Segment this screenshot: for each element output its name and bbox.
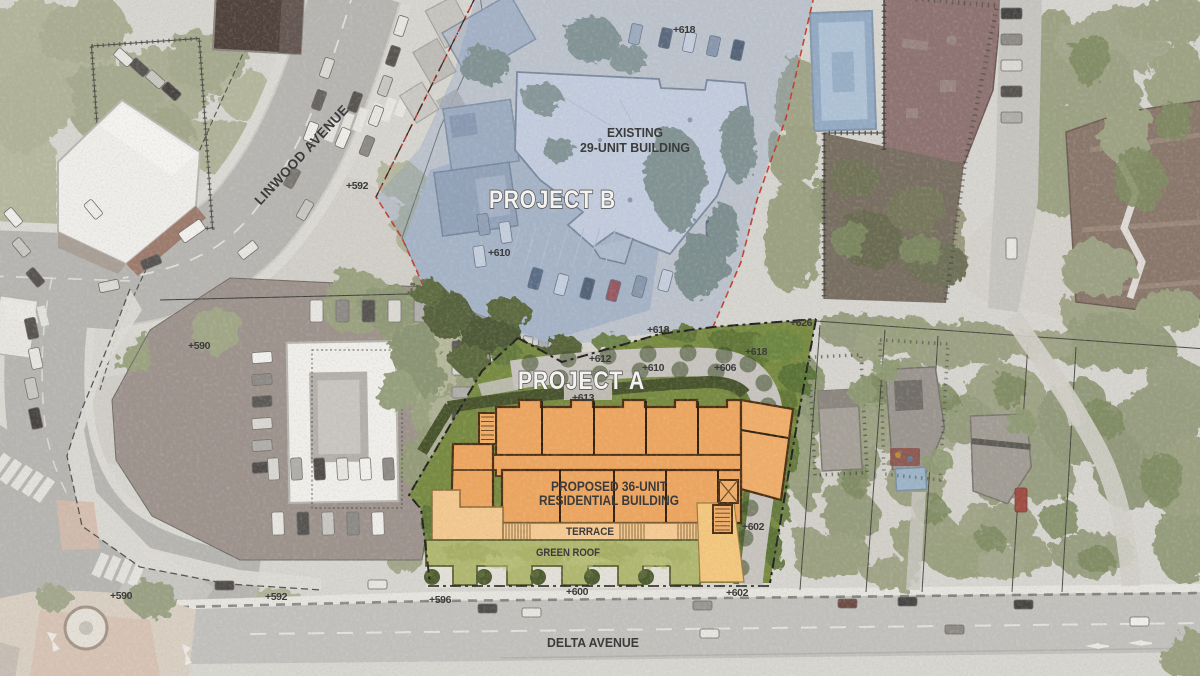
svg-text:+590: +590 (188, 340, 211, 352)
svg-text:+592: +592 (265, 591, 288, 603)
svg-text:DELTA AVENUE: DELTA AVENUE (547, 635, 639, 650)
svg-text:+596: +596 (429, 594, 452, 606)
svg-text:TERRACE: TERRACE (566, 526, 614, 538)
svg-text:+606: +606 (714, 362, 737, 374)
svg-text:29-UNIT BUILDING: 29-UNIT BUILDING (580, 141, 690, 155)
svg-text:PROJECT B: PROJECT B (489, 186, 616, 214)
svg-text:+613: +613 (572, 392, 595, 404)
svg-text:+600: +600 (566, 586, 589, 598)
svg-text:+590: +590 (110, 590, 133, 602)
svg-text:+602: +602 (726, 587, 749, 599)
svg-text:+610: +610 (642, 362, 665, 374)
svg-text:RESIDENTIAL BUILDING: RESIDENTIAL BUILDING (539, 493, 679, 508)
svg-text:+618: +618 (673, 24, 696, 36)
svg-text:PROPOSED 36-UNIT: PROPOSED 36-UNIT (551, 479, 668, 494)
svg-text:PROJECT A: PROJECT A (518, 367, 645, 395)
svg-text:GREEN ROOF: GREEN ROOF (536, 547, 600, 559)
svg-text:+602: +602 (742, 521, 765, 533)
svg-text:+610: +610 (488, 247, 511, 259)
svg-text:+618: +618 (745, 346, 768, 358)
svg-text:EXISTING: EXISTING (607, 126, 663, 140)
svg-text:+612: +612 (589, 353, 612, 365)
svg-text:+618: +618 (647, 324, 670, 336)
svg-text:+626: +626 (790, 317, 813, 329)
svg-text:+592: +592 (346, 180, 369, 192)
